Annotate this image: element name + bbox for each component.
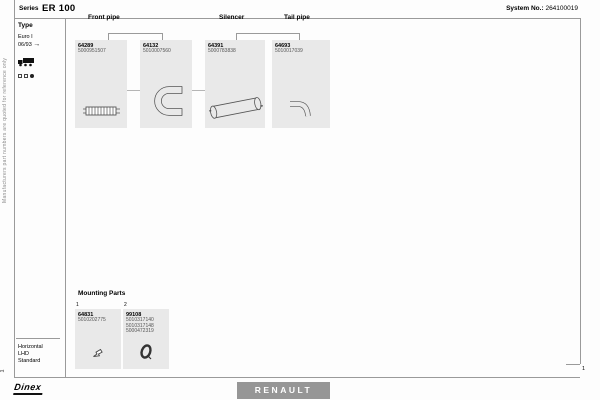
- system-no-value: 264100019: [545, 5, 578, 12]
- type-label: Type: [18, 22, 33, 29]
- clamp-icon: [92, 345, 104, 363]
- part-box-64391[interactable]: 64391 5000783838: [205, 40, 265, 128]
- tail-pipe-icon: [287, 100, 317, 123]
- page-number: 1: [582, 366, 585, 372]
- mounting-box-64831[interactable]: 64831 5010202775: [75, 309, 121, 369]
- lhd-label: LHD: [18, 351, 43, 358]
- column-header-silencer: Silencer: [219, 14, 244, 21]
- frame-right-border: [580, 18, 581, 364]
- side-note: Manufacturers part numbers are quoted fo…: [2, 18, 8, 203]
- variant-date: 06/93: [18, 42, 32, 48]
- dinex-logo: Dinex: [13, 383, 44, 395]
- part-box-64132[interactable]: 64132 5010007560: [140, 40, 192, 128]
- column-header-tail-pipe: Tail pipe: [284, 14, 310, 21]
- variant-name: Euro I: [18, 34, 40, 41]
- system-no-label: System No.:: [506, 5, 544, 12]
- axle-box-icon: [24, 74, 28, 78]
- part-ref: 5000951507: [78, 49, 127, 55]
- part-ref: 5010007560: [143, 49, 192, 55]
- sidebar-divider: [65, 18, 66, 378]
- part-ref: 5010017039: [275, 49, 330, 55]
- variant-block: Euro I 06/93 →: [18, 34, 40, 49]
- standard-label: Standard: [18, 358, 43, 365]
- part-box-64289[interactable]: 64289 5000951507: [75, 40, 127, 128]
- frame-right-tick: [566, 364, 580, 365]
- mounting-item-index: 2: [124, 302, 127, 308]
- mounting-title: Mounting Parts: [78, 290, 125, 297]
- mounting-item-index: 1: [76, 302, 79, 308]
- page-number-left: 1: [0, 369, 6, 372]
- nav-arrow-icon[interactable]: →: [33, 41, 40, 48]
- silencer-icon: [207, 93, 263, 126]
- pipe-connector: [127, 90, 140, 91]
- sidebar-footer-divider: [16, 338, 60, 339]
- part-box-64693[interactable]: 64693 5010017039: [272, 40, 330, 128]
- system-no: System No.: 264100019: [506, 5, 578, 12]
- part-ref: 5010202775: [78, 318, 121, 324]
- series-label: Series: [19, 5, 39, 12]
- part-ref: 5000783838: [208, 49, 265, 55]
- bent-pipe-icon: [152, 83, 186, 124]
- bracket-silencer-tail: [236, 33, 300, 40]
- axle-dot-icon: [30, 74, 34, 78]
- mounting-box-99108[interactable]: 99108 5010317140 5010317148 5000472319: [123, 309, 169, 369]
- axle-config-icon: [18, 67, 34, 85]
- axle-box-icon: [18, 74, 22, 78]
- bracket-front-pipe: [108, 33, 163, 40]
- flex-pipe-icon: [82, 104, 122, 122]
- orientation-label: Horizontal: [18, 344, 43, 351]
- frame-left-border: [14, 0, 15, 378]
- variant-date-row: 06/93 →: [18, 41, 40, 49]
- series-value: ER 100: [42, 3, 76, 14]
- part-ref: 5000472319: [126, 329, 169, 335]
- pipe-connector: [192, 90, 205, 91]
- renault-badge: RENAULT: [237, 382, 330, 399]
- frame-bottom-border: [14, 377, 580, 378]
- column-header-front-pipe: Front pipe: [88, 14, 120, 21]
- ring-clamp-icon: [138, 343, 154, 365]
- layout-spec: Horizontal LHD Standard: [18, 344, 43, 365]
